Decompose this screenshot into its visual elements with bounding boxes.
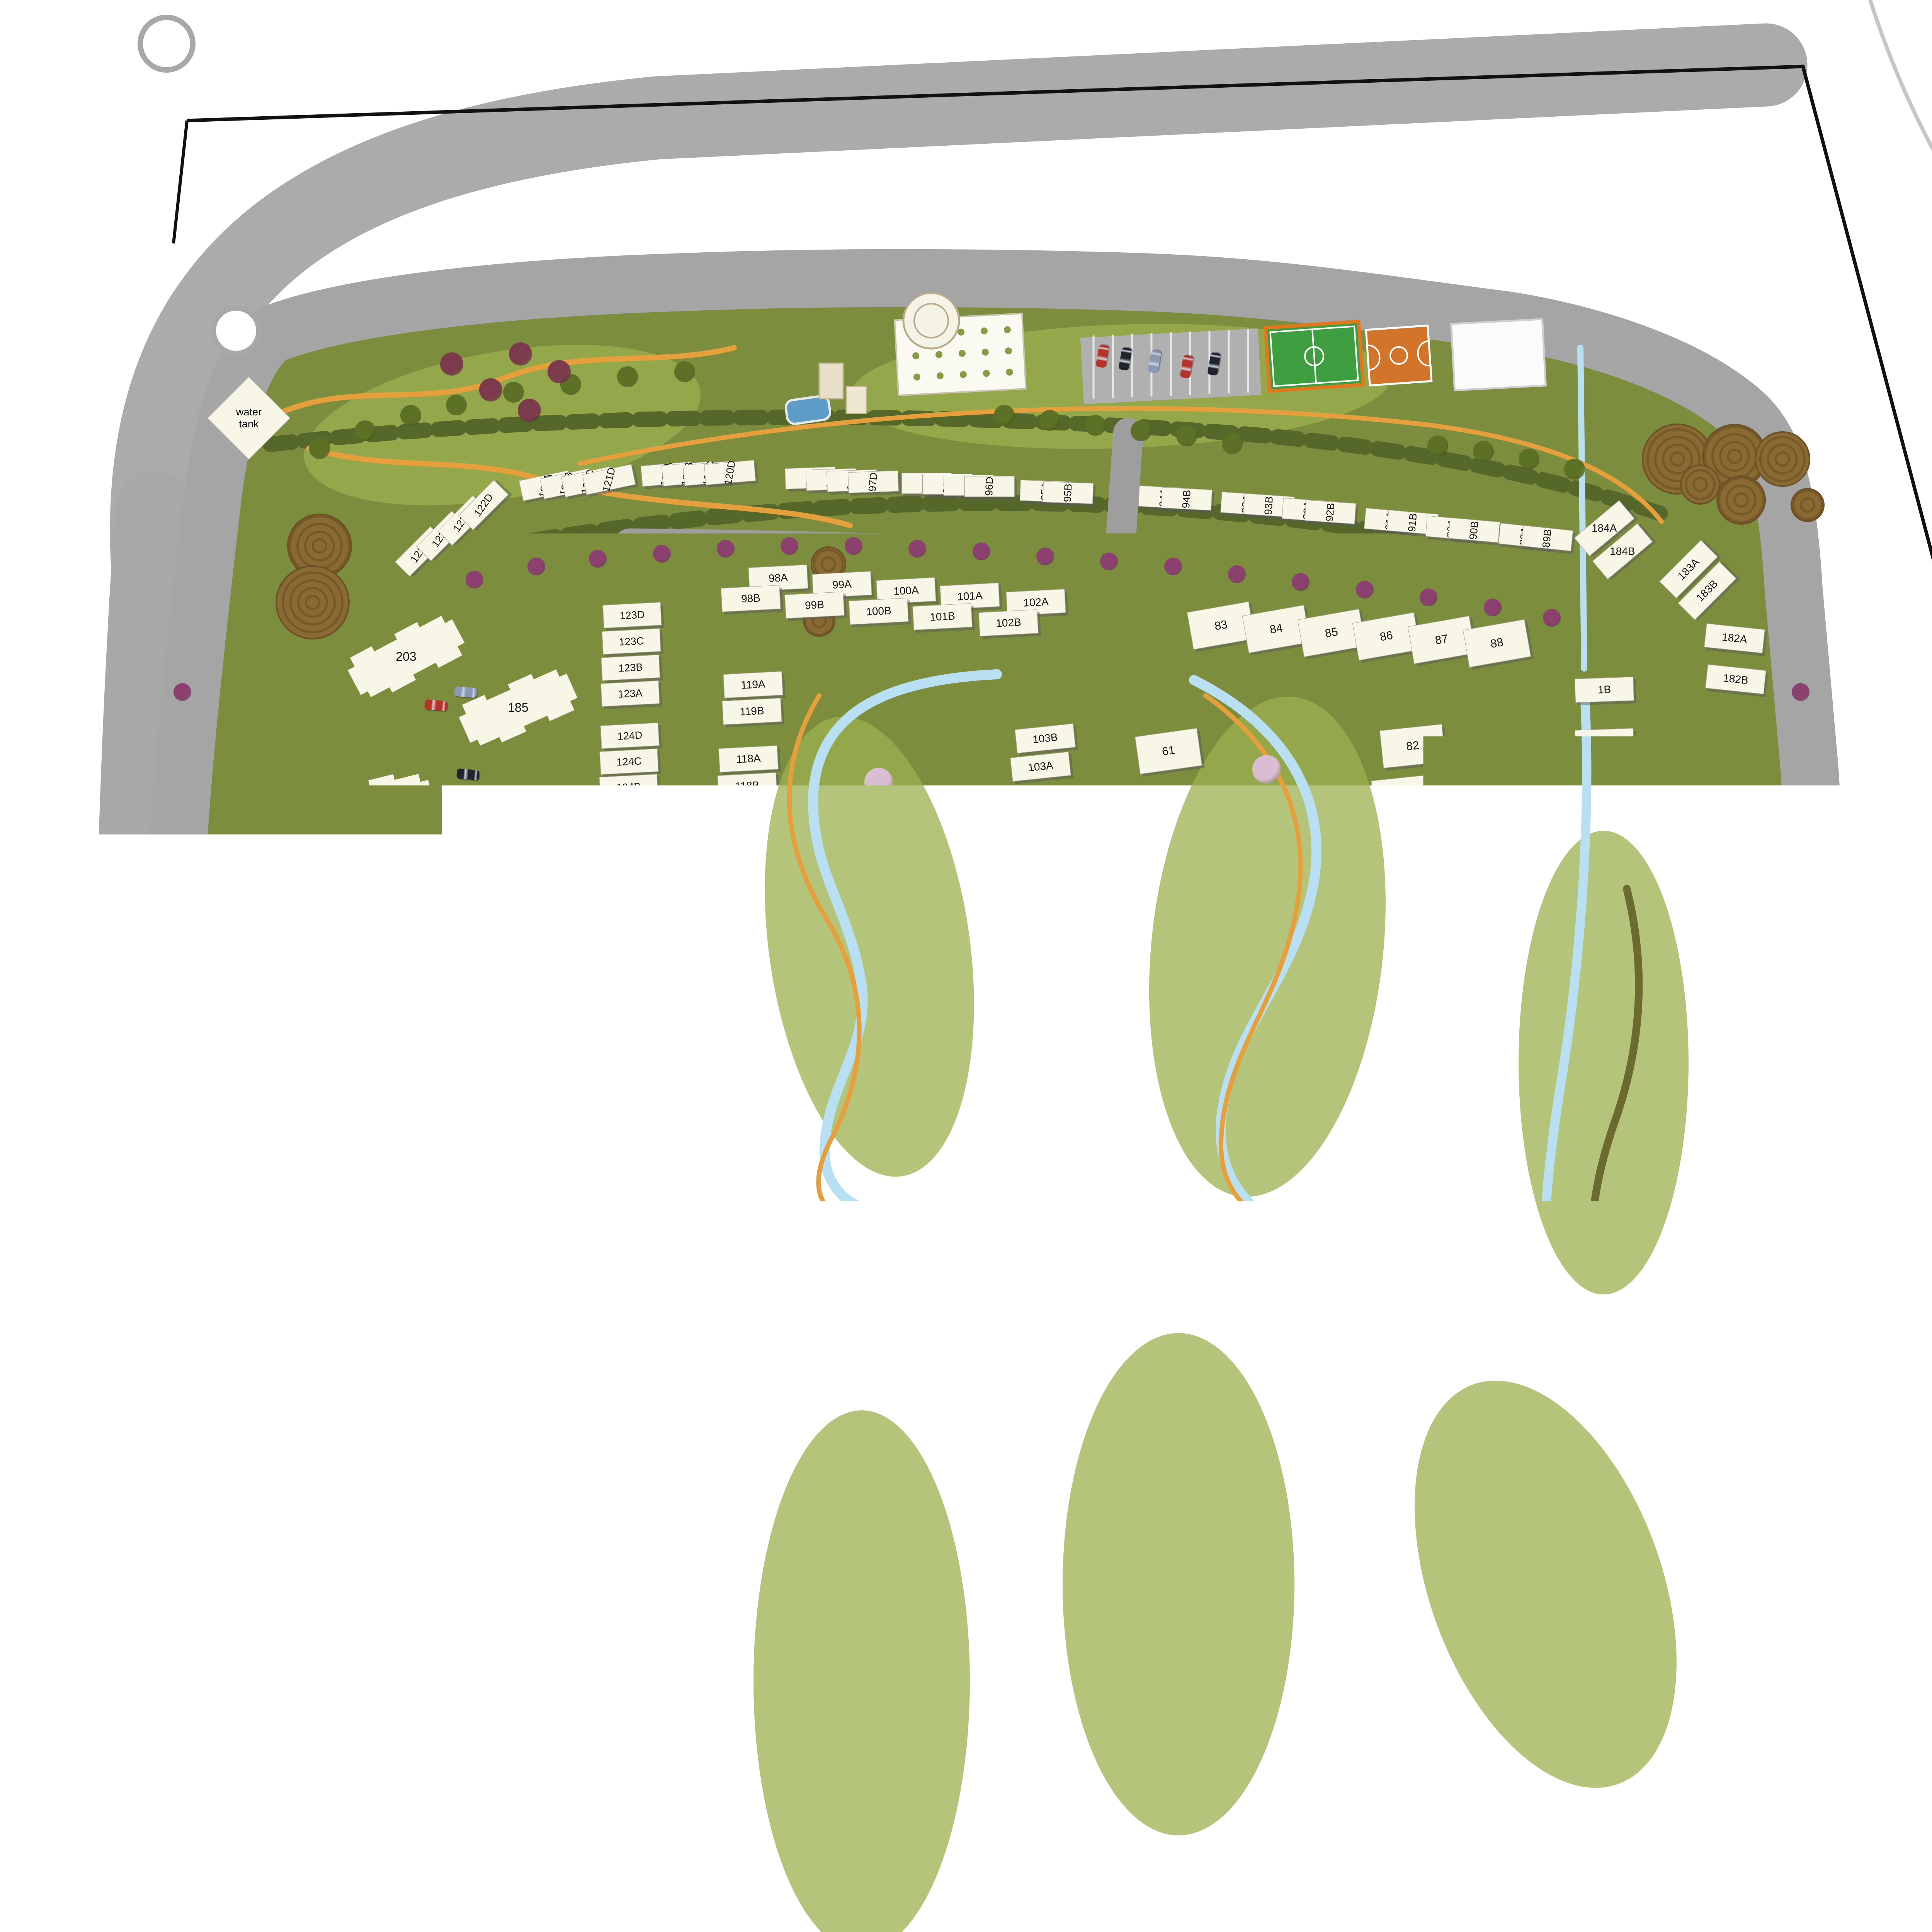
- building-label: 192: [359, 1780, 380, 1794]
- building-146B[interactable]: 146B: [924, 1340, 984, 1367]
- building-label: 37: [1291, 1353, 1305, 1367]
- building-116A[interactable]: 116A: [714, 894, 774, 921]
- building-150A[interactable]: 150A: [907, 1702, 967, 1729]
- building-103A[interactable]: 103A: [1010, 752, 1071, 782]
- building-180B[interactable]: 180B: [1709, 874, 1770, 905]
- building-103B[interactable]: 103B: [1015, 723, 1076, 753]
- building-98B[interactable]: 98B: [721, 585, 781, 612]
- building-126D[interactable]: 126D: [587, 986, 646, 1013]
- building-109A[interactable]: 109A: [930, 1207, 992, 1239]
- building-105B[interactable]: 105B: [997, 875, 1058, 905]
- building-106B[interactable]: 106B: [987, 946, 1048, 976]
- building-29[interactable]: 29: [1044, 1582, 1110, 1626]
- building-label: 19: [1232, 1874, 1248, 1890]
- building-169A[interactable]: 169A: [1639, 1898, 1693, 1932]
- building-136B[interactable]: 136B: [575, 1865, 637, 1898]
- building-3A[interactable]: 3A: [1595, 935, 1655, 961]
- building-102B[interactable]: 102B: [979, 609, 1039, 636]
- building-label: 105A: [1009, 910, 1036, 925]
- building-62[interactable]: 62: [1128, 787, 1196, 834]
- building-67[interactable]: 67: [1097, 1083, 1164, 1130]
- building-4A[interactable]: 4A: [1602, 1031, 1661, 1055]
- building-125C[interactable]: 125C: [592, 889, 651, 917]
- building-139B[interactable]: 139B: [646, 1638, 707, 1670]
- building-188[interactable]: 188: [436, 1100, 554, 1155]
- building-114A[interactable]: 114A: [707, 1043, 767, 1070]
- building-label: 98B: [741, 592, 760, 605]
- building-151B[interactable]: 151B: [908, 1738, 968, 1765]
- building-9B[interactable]: 9B: [1679, 1332, 1740, 1361]
- building-65[interactable]: 65: [1109, 965, 1177, 1011]
- building-label: 44: [1555, 1685, 1571, 1701]
- building-176B[interactable]: 176B: [1737, 1317, 1798, 1349]
- building-label: 70: [1244, 1222, 1258, 1236]
- building-45[interactable]: 45: [1515, 1619, 1585, 1670]
- building-127D[interactable]: 127D: [582, 1107, 641, 1134]
- building-182B[interactable]: 182B: [1705, 664, 1766, 694]
- building-label: 32: [1077, 1446, 1091, 1461]
- building-48[interactable]: 48: [1476, 1473, 1546, 1525]
- building-132B[interactable]: 132B: [445, 1890, 507, 1925]
- building-171D[interactable]: 171D: [1744, 1736, 1803, 1792]
- building-88[interactable]: 88: [1463, 619, 1531, 668]
- building-199[interactable]: 199: [272, 1383, 399, 1483]
- building-label: 142B: [702, 1423, 729, 1439]
- building-125A[interactable]: 125A: [590, 942, 650, 969]
- building-143A[interactable]: 143A: [702, 1310, 763, 1342]
- building-137A[interactable]: 137A: [601, 1745, 663, 1778]
- building-label: 132C: [466, 1868, 493, 1885]
- building-label: 97D: [866, 472, 880, 492]
- building-50[interactable]: 50: [1450, 1376, 1520, 1428]
- building-32[interactable]: 32: [1051, 1432, 1117, 1476]
- building-10B[interactable]: 10B: [1704, 1402, 1765, 1434]
- building-174A[interactable]: 174A: [1802, 1317, 1863, 1350]
- building-label: 10A: [1731, 1441, 1752, 1456]
- building-60[interactable]: 60: [1470, 827, 1538, 875]
- building-178A[interactable]: 178A: [1722, 1068, 1783, 1100]
- building-119A[interactable]: 119A: [723, 671, 783, 698]
- building-108A[interactable]: 108A: [967, 1118, 1028, 1148]
- building-142A[interactable]: 142A: [688, 1386, 750, 1418]
- building-92B[interactable]: 92B: [1304, 500, 1356, 524]
- building-117A[interactable]: 117A: [716, 822, 776, 849]
- building-123A[interactable]: 123A: [600, 681, 660, 707]
- building-52[interactable]: 52: [1422, 1258, 1491, 1306]
- building-56[interactable]: 56: [1446, 1043, 1514, 1091]
- building-label: 38: [1340, 1354, 1354, 1368]
- building-132C[interactable]: 132C: [449, 1859, 510, 1894]
- building-113A[interactable]: 113A: [702, 1112, 762, 1139]
- building-120D[interactable]: 120D: [704, 460, 756, 485]
- building-label: 190: [528, 1529, 549, 1543]
- building-137B[interactable]: 137B: [598, 1775, 660, 1809]
- building-5A[interactable]: 5A: [1588, 1146, 1648, 1172]
- building-175A[interactable]: 175A: [1742, 1379, 1804, 1411]
- building-178B[interactable]: 178B: [1723, 1107, 1784, 1139]
- building-182A[interactable]: 182A: [1704, 623, 1765, 653]
- building-label: 7A: [1588, 1375, 1602, 1388]
- building-label: 169A: [1655, 1905, 1677, 1932]
- building-130D[interactable]: 130D: [543, 1617, 603, 1648]
- building-label: 60: [1497, 844, 1512, 859]
- building-115A[interactable]: 115A: [712, 968, 772, 995]
- building-145B[interactable]: 145B: [851, 1337, 911, 1365]
- building-53[interactable]: 53: [1428, 1204, 1497, 1252]
- building-174B[interactable]: 174B: [1809, 1342, 1870, 1374]
- building-31[interactable]: 31: [1049, 1482, 1115, 1526]
- building-label: 124C: [616, 755, 642, 768]
- building-label: 117B: [733, 856, 758, 869]
- building-173B[interactable]: 173B: [1835, 1473, 1895, 1501]
- building-label: 56: [1473, 1059, 1488, 1074]
- building-180A[interactable]: 180A: [1708, 836, 1769, 867]
- building-label: 143B: [716, 1346, 742, 1362]
- building-125B[interactable]: 125B: [591, 916, 651, 943]
- building-181A[interactable]: 181A: [1706, 736, 1767, 766]
- building-141A[interactable]: 141A: [681, 1458, 743, 1490]
- building-6B[interactable]: 6B: [1579, 1209, 1639, 1236]
- building-123C[interactable]: 123C: [602, 628, 661, 655]
- building-label: 14A: [1632, 1720, 1655, 1741]
- building-12B[interactable]: 12B: [1714, 1569, 1777, 1605]
- building-76[interactable]: 76: [1328, 1027, 1394, 1071]
- building-177A[interactable]: 177A: [1729, 1176, 1790, 1208]
- building-100B[interactable]: 100B: [849, 598, 908, 625]
- building-80[interactable]: 80: [1362, 825, 1429, 869]
- building-77[interactable]: 77: [1337, 976, 1403, 1020]
- building-25[interactable]: 25: [1035, 1783, 1101, 1827]
- building-113B[interactable]: 113B: [701, 1139, 761, 1166]
- building-7B[interactable]: 7B: [1567, 1322, 1628, 1350]
- building-99B[interactable]: 99B: [785, 592, 845, 619]
- building-126A[interactable]: 126A: [583, 1063, 643, 1090]
- building-label: 130D: [560, 1626, 586, 1641]
- building-label: 101B: [930, 610, 956, 623]
- building-16[interactable]: 16: [1421, 1787, 1491, 1838]
- building-label: 139A: [667, 1617, 693, 1633]
- building-label: 68: [1340, 1225, 1354, 1239]
- building-4B[interactable]: 4B: [1600, 988, 1659, 1012]
- building-63[interactable]: 63: [1122, 847, 1189, 893]
- building-148B[interactable]: 148B: [910, 1507, 970, 1534]
- building-label: 141B: [695, 1495, 722, 1510]
- building-143B[interactable]: 143B: [698, 1338, 760, 1370]
- building-140A[interactable]: 140A: [668, 1535, 729, 1567]
- building-6A[interactable]: 6A: [1577, 1255, 1636, 1282]
- building-198[interactable]: 198: [238, 1561, 364, 1639]
- building-135A[interactable]: 135A: [567, 1924, 629, 1932]
- building-label: 173A: [1850, 1452, 1875, 1466]
- building-167A[interactable]: 167A: [1335, 1926, 1389, 1932]
- building-107B[interactable]: 107B: [978, 1021, 1039, 1051]
- building-8A[interactable]: 8A: [1556, 1478, 1616, 1507]
- building-144B[interactable]: 144B: [782, 1335, 843, 1362]
- building-203[interactable]: 203: [343, 606, 470, 706]
- building-151A[interactable]: 151A: [907, 1774, 967, 1801]
- building-label: 33: [1098, 1347, 1112, 1361]
- building-200[interactable]: 200: [301, 1086, 420, 1145]
- building-118A[interactable]: 118A: [719, 745, 779, 772]
- building-47[interactable]: 47: [1489, 1522, 1559, 1573]
- building-label: 120D: [722, 459, 738, 486]
- building-57[interactable]: 57: [1452, 988, 1520, 1037]
- building-186[interactable]: 186: [447, 809, 571, 883]
- building-label: 9B: [1702, 1339, 1716, 1353]
- building-115B[interactable]: 115B: [711, 995, 770, 1022]
- building-label: 116A: [731, 901, 757, 914]
- building-label: 119B: [740, 705, 765, 718]
- building-label: 172D: [1833, 1663, 1859, 1677]
- building-label: 127B: [598, 1165, 623, 1178]
- building-label: 145A: [895, 1323, 921, 1337]
- building-124B[interactable]: 124B: [599, 774, 658, 800]
- building-41[interactable]: 41: [1344, 1550, 1416, 1607]
- building-141B[interactable]: 141B: [678, 1486, 739, 1519]
- building-90B[interactable]: 90B: [1448, 518, 1500, 543]
- building-202[interactable]: 202: [311, 766, 437, 844]
- building-94B[interactable]: 94B: [1161, 487, 1213, 511]
- building-130A[interactable]: 130A: [532, 1704, 593, 1735]
- building-27[interactable]: 27: [1039, 1683, 1105, 1727]
- building-152A[interactable]: 152A: [912, 1848, 971, 1875]
- building-12A[interactable]: 12A: [1708, 1602, 1770, 1638]
- building-5B[interactable]: 5B: [1590, 1100, 1650, 1126]
- building-152B[interactable]: 152B: [913, 1812, 973, 1839]
- building-label: 84: [1269, 622, 1284, 637]
- building-label: 199: [325, 1426, 345, 1440]
- building-96D[interactable]: 96D: [964, 476, 1015, 497]
- building-181B[interactable]: 181B: [1706, 777, 1767, 807]
- building-136A[interactable]: 136A: [578, 1834, 640, 1868]
- building-label: 94B: [1180, 489, 1193, 509]
- building-label: 122D: [471, 492, 495, 519]
- building-127B[interactable]: 127B: [581, 1158, 640, 1185]
- building-28[interactable]: 28: [1042, 1633, 1108, 1677]
- building-187[interactable]: 187: [439, 966, 560, 1029]
- building-142B[interactable]: 142B: [685, 1415, 746, 1447]
- building-128B[interactable]: 128B: [584, 1398, 644, 1425]
- building-3B[interactable]: 3B: [1595, 889, 1655, 915]
- building-1B[interactable]: 1B: [1575, 677, 1634, 702]
- building-label: 47: [1516, 1539, 1532, 1555]
- building-130B[interactable]: 130B: [536, 1675, 596, 1706]
- building-2A[interactable]: 2A: [1590, 830, 1650, 856]
- building-129A[interactable]: 129A: [560, 1567, 620, 1596]
- building-label: 107A: [991, 1056, 1017, 1071]
- building-1A[interactable]: 1A: [1575, 728, 1634, 754]
- building-58[interactable]: 58: [1458, 935, 1526, 983]
- building-label: 49: [1490, 1443, 1506, 1459]
- building-label: 100A: [893, 584, 919, 598]
- building-124C[interactable]: 124C: [600, 748, 659, 775]
- building-label: 203: [396, 649, 417, 663]
- building-170D[interactable]: 170D: [1709, 1869, 1769, 1924]
- building-176A[interactable]: 176A: [1736, 1279, 1797, 1311]
- building-label: 9A: [1709, 1370, 1723, 1384]
- building-129D[interactable]: 129D: [570, 1480, 630, 1509]
- building-140B[interactable]: 140B: [664, 1563, 726, 1595]
- building-11B[interactable]: 11B: [1717, 1479, 1779, 1511]
- building-label: 136A: [596, 1843, 623, 1859]
- building-132D[interactable]: 132D: [453, 1828, 514, 1863]
- building-label: 127D: [599, 1114, 624, 1127]
- building-label: 12A: [1728, 1612, 1750, 1628]
- building-124D[interactable]: 124D: [600, 723, 660, 749]
- building-105A[interactable]: 105A: [992, 903, 1053, 933]
- building-30[interactable]: 30: [1046, 1532, 1112, 1576]
- building-179B[interactable]: 179B: [1716, 997, 1777, 1028]
- building-2B[interactable]: 2B: [1588, 787, 1648, 813]
- building-55[interactable]: 55: [1440, 1096, 1509, 1145]
- building-147A[interactable]: 147A: [923, 1468, 983, 1495]
- building-112A[interactable]: 112A: [700, 1181, 760, 1208]
- building-119B[interactable]: 119B: [722, 698, 782, 725]
- building-172C[interactable]: 172C: [1820, 1628, 1880, 1657]
- building-117B[interactable]: 117B: [715, 849, 775, 876]
- building-177B[interactable]: 177B: [1730, 1215, 1791, 1247]
- building-26[interactable]: 26: [1037, 1733, 1103, 1777]
- building-label: 26: [1063, 1748, 1078, 1762]
- building-label: 146A: [966, 1326, 992, 1340]
- building-label: 119A: [741, 678, 766, 691]
- building-123B[interactable]: 123B: [601, 655, 660, 681]
- building-173D[interactable]: 173D: [1841, 1529, 1901, 1558]
- building-label: 40: [1354, 1512, 1370, 1528]
- building-7A[interactable]: 7A: [1565, 1368, 1625, 1396]
- building-114B[interactable]: 114B: [706, 1070, 766, 1097]
- building-147B[interactable]: 147B: [924, 1432, 984, 1459]
- building-74[interactable]: 74: [1311, 1128, 1377, 1172]
- building-173C[interactable]: 173C: [1838, 1501, 1898, 1529]
- building-label: 148A: [926, 1549, 952, 1563]
- building-89B[interactable]: 89B: [1521, 525, 1573, 551]
- building-172D[interactable]: 172D: [1816, 1655, 1876, 1684]
- building-43[interactable]: 43: [1379, 1667, 1451, 1723]
- building-label: 186: [498, 839, 519, 853]
- building-label: 83: [1213, 618, 1228, 633]
- building-97D[interactable]: 97D: [848, 471, 899, 493]
- building-61[interactable]: 61: [1135, 728, 1202, 774]
- building-label: 48: [1503, 1491, 1519, 1507]
- building-174D[interactable]: 174D: [1823, 1391, 1884, 1424]
- building-38[interactable]: 38: [1314, 1340, 1379, 1383]
- building-149A[interactable]: 149A: [909, 1622, 969, 1649]
- building-104A[interactable]: 104A: [999, 826, 1060, 856]
- building-116B[interactable]: 116B: [713, 921, 773, 948]
- building-label: 124A: [615, 806, 640, 819]
- building-11A[interactable]: 11A: [1722, 1510, 1783, 1542]
- building-196[interactable]: 196: [234, 1844, 359, 1932]
- building-130C[interactable]: 130C: [539, 1646, 600, 1677]
- building-label: 150B: [925, 1672, 951, 1686]
- building-172B[interactable]: 172B: [1824, 1600, 1884, 1629]
- building-128A[interactable]: 128A: [582, 1427, 641, 1454]
- building-44[interactable]: 44: [1528, 1667, 1598, 1719]
- building-label: 1A: [1597, 735, 1611, 747]
- building-label: 45: [1542, 1636, 1558, 1652]
- building-108B[interactable]: 108B: [971, 1090, 1032, 1120]
- building-126B[interactable]: 126B: [584, 1037, 644, 1065]
- building-51[interactable]: 51: [1437, 1328, 1507, 1379]
- building-label: 125A: [607, 949, 632, 963]
- building-79[interactable]: 79: [1354, 876, 1420, 920]
- building-9A[interactable]: 9A: [1686, 1362, 1747, 1391]
- building-42[interactable]: 42: [1362, 1608, 1434, 1665]
- building-101B[interactable]: 101B: [913, 603, 973, 630]
- building-68[interactable]: 68: [1314, 1211, 1379, 1253]
- building-82[interactable]: 82: [1379, 724, 1446, 768]
- building-106A[interactable]: 106A: [983, 975, 1044, 1005]
- building-label: 191: [476, 1687, 496, 1702]
- building-126C[interactable]: 126C: [585, 1012, 645, 1039]
- building-label: 75: [1345, 1092, 1360, 1107]
- building-148A[interactable]: 148A: [909, 1543, 969, 1570]
- building-label: 28: [1068, 1648, 1082, 1662]
- building-138B[interactable]: 138B: [616, 1704, 678, 1736]
- building-118B[interactable]: 118B: [718, 772, 777, 799]
- building-label: 130C: [556, 1655, 582, 1670]
- building-179A[interactable]: 179A: [1715, 959, 1776, 990]
- building-label: 196: [286, 1890, 307, 1904]
- building-label: 85: [1324, 625, 1339, 640]
- building-label: 132B: [463, 1899, 489, 1916]
- building-123D[interactable]: 123D: [602, 602, 662, 629]
- building-label: 149A: [926, 1629, 952, 1642]
- building-112B[interactable]: 112B: [699, 1208, 759, 1235]
- building-78[interactable]: 78: [1345, 926, 1412, 970]
- building-label: 140B: [682, 1571, 708, 1587]
- building-label: 88: [1490, 636, 1505, 651]
- building-label: 123D: [619, 609, 645, 622]
- building-54[interactable]: 54: [1434, 1150, 1503, 1199]
- building-121D[interactable]: 121D: [582, 464, 636, 495]
- building-81[interactable]: 81: [1371, 774, 1437, 818]
- building-173A[interactable]: 173A: [1832, 1445, 1892, 1473]
- building-138A[interactable]: 138A: [620, 1676, 681, 1708]
- building-125D[interactable]: 125D: [593, 863, 653, 890]
- building-201[interactable]: 201: [304, 937, 426, 1002]
- building-49[interactable]: 49: [1463, 1425, 1533, 1476]
- building-139A[interactable]: 139A: [649, 1609, 711, 1641]
- building-label: 147B: [941, 1439, 967, 1452]
- building-124A[interactable]: 124A: [598, 799, 657, 826]
- building-172A[interactable]: 172A: [1828, 1572, 1888, 1601]
- building-185[interactable]: 185: [454, 661, 582, 755]
- building-46[interactable]: 46: [1502, 1570, 1572, 1622]
- building-150B[interactable]: 150B: [908, 1666, 968, 1693]
- building-8B[interactable]: 8B: [1558, 1432, 1619, 1461]
- building-label: 58: [1485, 951, 1500, 966]
- building-66[interactable]: 66: [1103, 1024, 1170, 1071]
- building-104B[interactable]: 104B: [1003, 798, 1065, 828]
- building-39[interactable]: 39: [1308, 1433, 1380, 1490]
- building-label: 81: [1397, 789, 1411, 804]
- building-107A[interactable]: 107A: [974, 1049, 1035, 1079]
- building-40[interactable]: 40: [1326, 1491, 1398, 1548]
- building-127C[interactable]: 127C: [582, 1133, 641, 1159]
- building-149B[interactable]: 149B: [910, 1586, 970, 1613]
- building-95B[interactable]: 95B: [1043, 481, 1094, 504]
- building-label: 141A: [699, 1466, 725, 1482]
- building-111A[interactable]: 111A: [811, 1209, 873, 1242]
- building-75[interactable]: 75: [1320, 1078, 1386, 1122]
- building-127A[interactable]: 127A: [580, 1184, 639, 1211]
- building-64[interactable]: 64: [1116, 906, 1183, 952]
- building-label: 109A: [947, 1215, 974, 1231]
- building-label: 188: [485, 1121, 505, 1135]
- building-59[interactable]: 59: [1464, 881, 1532, 929]
